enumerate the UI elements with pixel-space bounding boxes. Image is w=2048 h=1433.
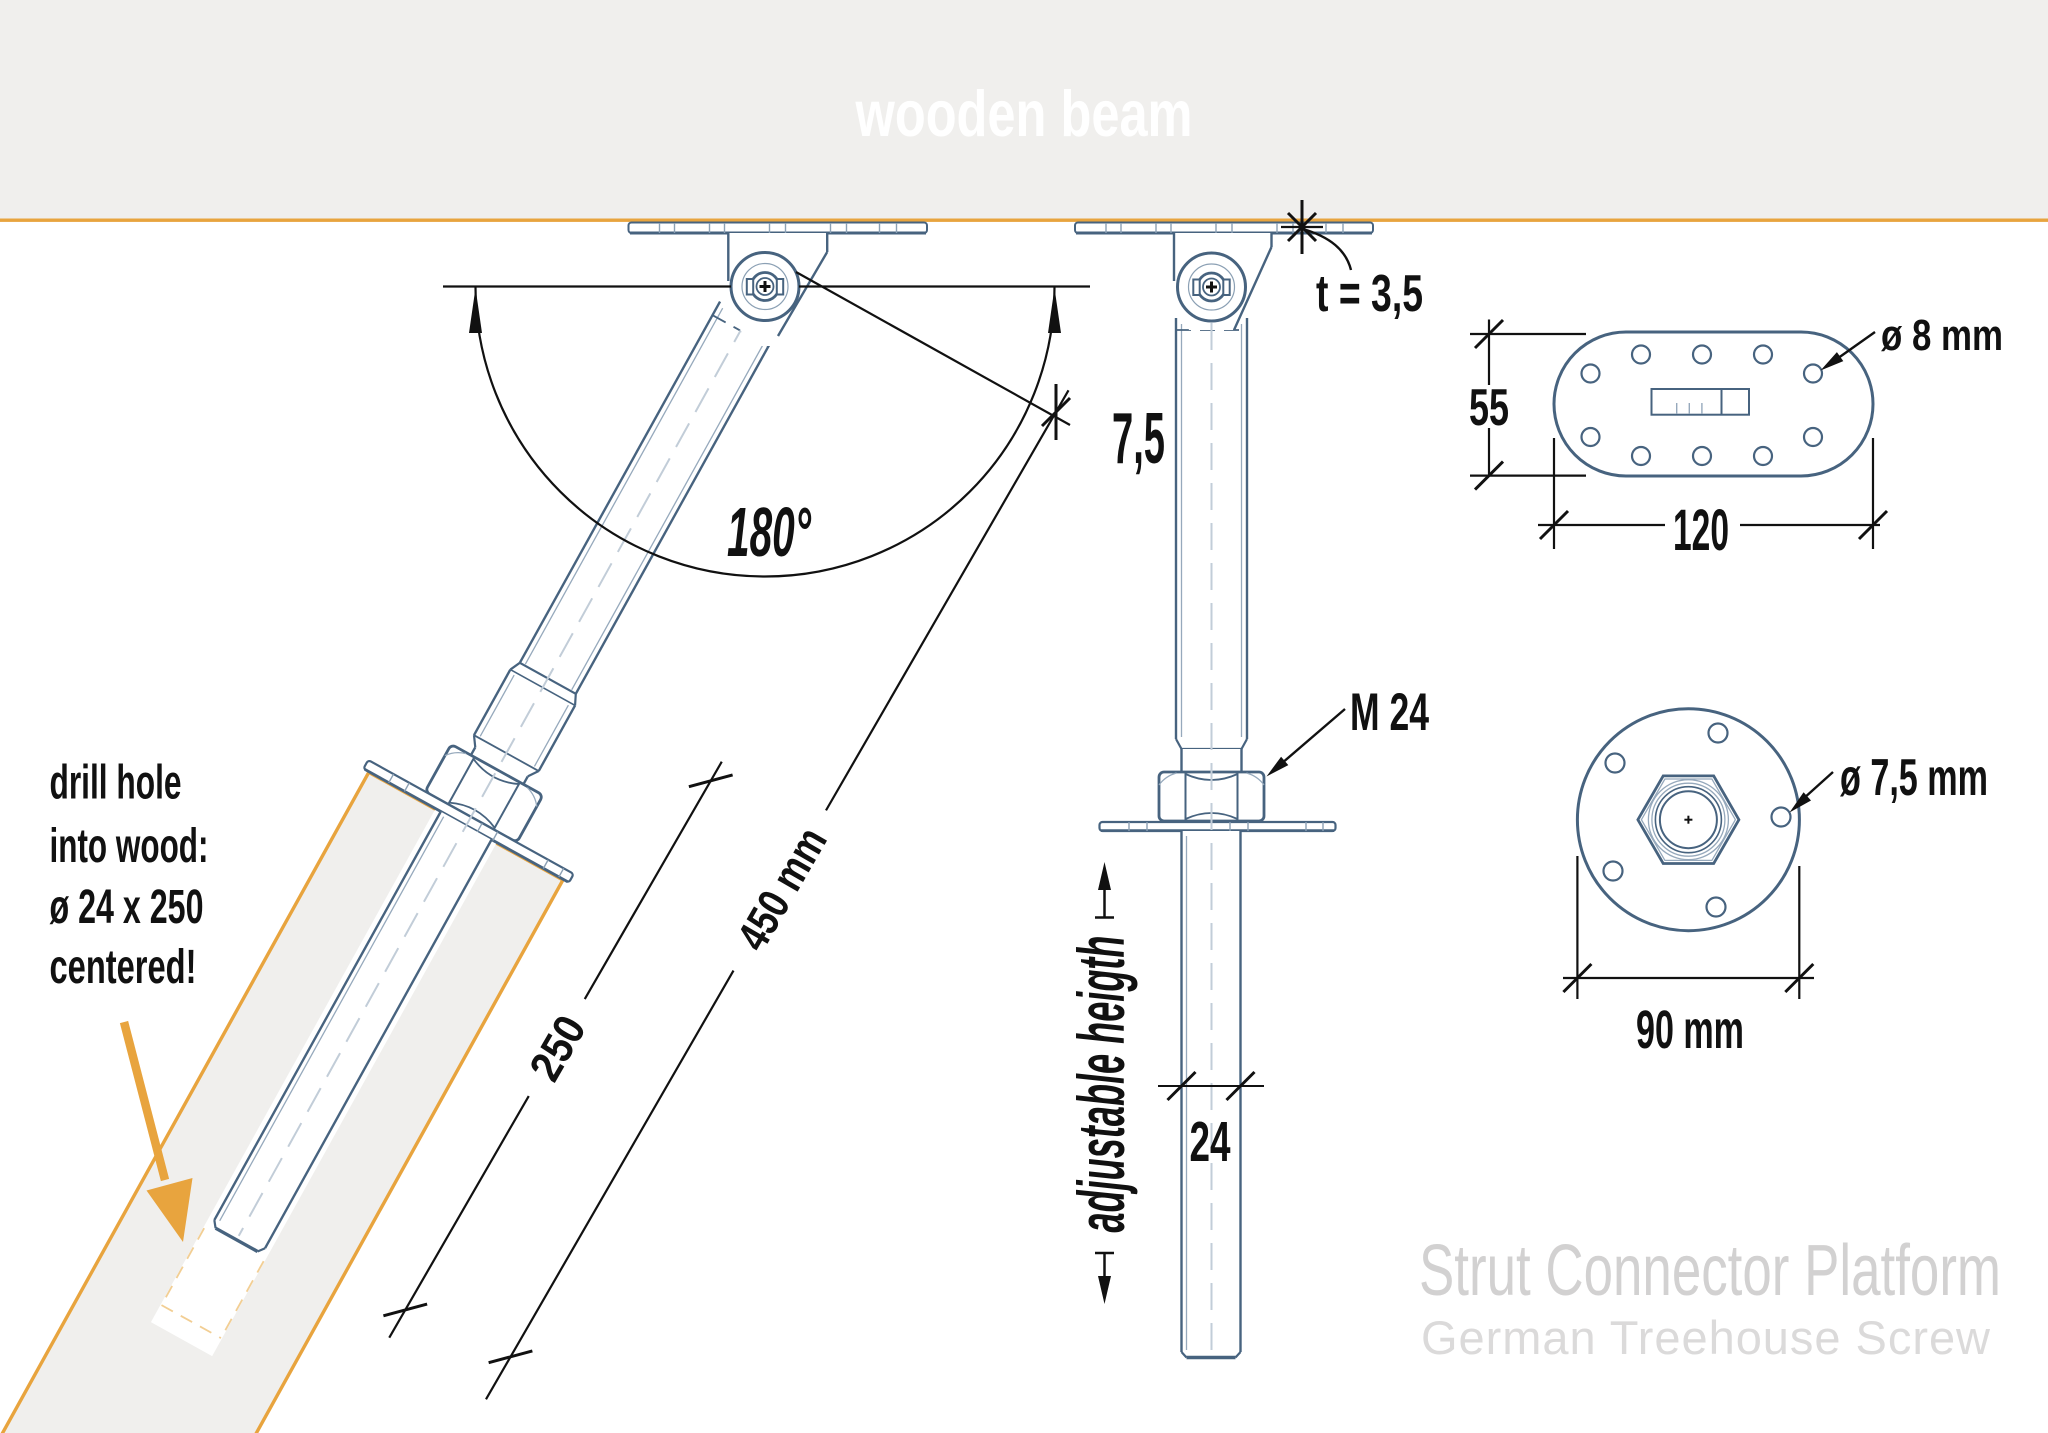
svg-text:120: 120: [1673, 498, 1729, 563]
svg-text:into wood:: into wood:: [50, 820, 209, 873]
svg-text:180°: 180°: [727, 493, 812, 571]
svg-text:Strut Connector Platform: Strut Connector Platform: [1419, 1231, 2001, 1311]
svg-text:drill hole: drill hole: [50, 757, 182, 810]
svg-text:wooden beam: wooden beam: [855, 77, 1193, 150]
svg-text:90 mm: 90 mm: [1636, 1000, 1744, 1060]
svg-text:centered!: centered!: [50, 941, 197, 994]
svg-text:M 24: M 24: [1350, 683, 1429, 742]
svg-text:t = 3,5: t = 3,5: [1316, 265, 1423, 323]
svg-text:7,5: 7,5: [1112, 399, 1165, 479]
svg-text:55: 55: [1469, 379, 1509, 437]
svg-text:24: 24: [1190, 1110, 1231, 1174]
svg-text:ø 8 mm: ø 8 mm: [1881, 311, 2003, 360]
svg-text:adjustable heigth: adjustable heigth: [1064, 936, 1138, 1233]
svg-text:ø 24 x 250: ø 24 x 250: [50, 881, 204, 934]
svg-text:ø 7,5 mm: ø 7,5 mm: [1840, 749, 1988, 807]
svg-text:German Treehouse Screw: German Treehouse Screw: [1421, 1311, 1991, 1364]
